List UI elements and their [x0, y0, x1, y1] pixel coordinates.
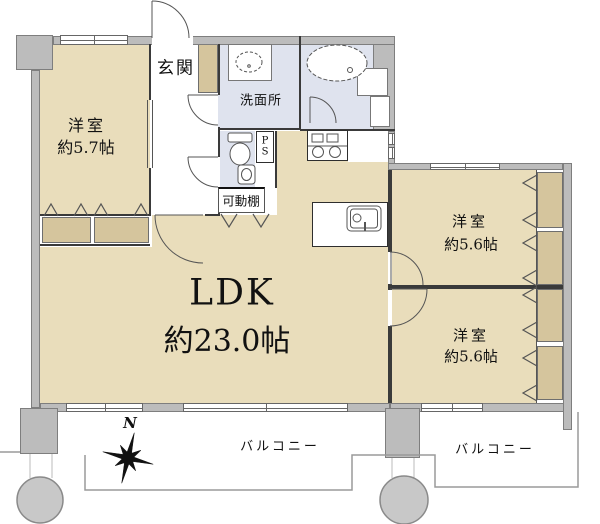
closet-east-1: [537, 172, 563, 228]
wash-basin-counter: [228, 44, 272, 81]
floor-plan: 玄関 洗面所 P S 可動棚 洋室 約5.7帖 LDK 約23.0帖 洋室 約5…: [0, 0, 600, 524]
bath-storage-a: [357, 68, 388, 96]
wall-hall-bottom-stub: [205, 214, 220, 216]
bedroom-east-upper-name: 洋室: [452, 211, 488, 232]
window-ldk-south-2: [183, 403, 348, 412]
window-ldk-south-1: [66, 403, 143, 412]
pillar-circle-left: [17, 477, 63, 523]
pillar-southwest: [20, 408, 58, 454]
pipe-space-label-p: P: [262, 136, 269, 147]
ldk-size: 約23.0帖: [164, 316, 291, 360]
wall-ldk-east-1: [388, 170, 392, 252]
shoe-cabinet: [198, 43, 218, 93]
sliding-door-line-a: [147, 100, 148, 168]
wall-bedroom-west-right-lower: [149, 168, 151, 216]
kitchen-island: [312, 202, 388, 247]
wall-closet-west-bottom: [40, 244, 150, 246]
bedroom-west-name: 洋室: [68, 112, 106, 136]
bath-storage-b: [370, 96, 390, 127]
corner-block-nw: [16, 35, 53, 70]
wall-bedroom-west-right-upper: [149, 44, 151, 100]
window-bedroom-west-top: [60, 35, 128, 45]
wall-east-rooms-divider: [392, 285, 563, 289]
ldk-name: LDK: [189, 273, 275, 314]
washroom-label: 洗面所: [240, 90, 282, 109]
sliding-door-line-b: [152, 100, 153, 168]
closet-west-a: [42, 217, 91, 243]
kitchen-counter-strip: [348, 130, 388, 162]
bedroom-east-lower-name: 洋室: [453, 325, 489, 346]
north-label: N: [123, 414, 137, 432]
pillar-south-mid: [385, 408, 420, 458]
compass-icon: [96, 426, 159, 489]
closet-east-2: [537, 231, 563, 285]
movable-shelf-label: 可動棚: [222, 191, 260, 210]
balcony-right-label: バルコニー: [455, 439, 535, 458]
pillar-form-lines: [30, 454, 414, 478]
wall-hall-right-1: [218, 44, 220, 95]
wall-washroom-bottom: [218, 128, 300, 130]
window-kitchen-east-2: [388, 147, 395, 159]
wall-toilet-kitchen-divider: [275, 131, 277, 188]
entrance-label: 玄関: [157, 54, 195, 79]
wall-hall-right-2: [218, 127, 220, 157]
wall-bedroom-west-bottom: [40, 214, 150, 216]
stove-box: [307, 130, 348, 161]
toilet-floor: [220, 131, 255, 188]
balcony-left-label: バルコニー: [240, 436, 320, 455]
bedroom-east-upper-size: 約5.6帖: [444, 234, 498, 255]
window-bedroom-east-top: [430, 163, 500, 170]
pipe-space-label-s: S: [262, 147, 269, 158]
closet-west-b: [94, 217, 149, 243]
bedroom-west-size: 約5.7帖: [57, 134, 114, 158]
wall-right: [563, 163, 572, 430]
window-bedroom-east-south: [421, 403, 483, 412]
pillar-circles: [17, 476, 428, 524]
pillar-circle-mid: [380, 476, 428, 524]
entrance-opening: [152, 35, 193, 45]
bedroom-east-lower-size: 約5.6帖: [444, 346, 498, 367]
closet-east-4: [537, 346, 563, 400]
wall-left: [31, 70, 40, 408]
closet-column-left-line: [536, 170, 537, 403]
closet-east-3: [537, 289, 563, 342]
wall-wash-bath-divider: [299, 36, 301, 130]
wall-ldk-east-3: [388, 326, 392, 403]
window-kitchen-east-1: [388, 133, 395, 145]
